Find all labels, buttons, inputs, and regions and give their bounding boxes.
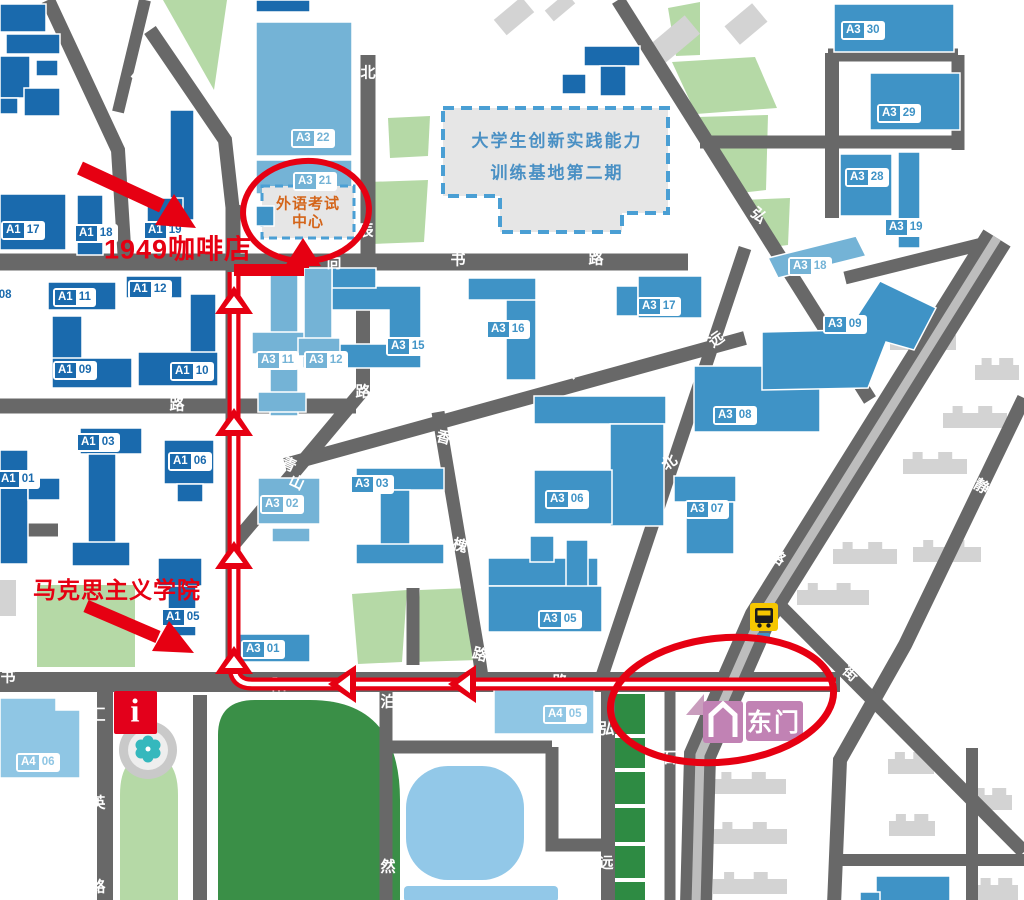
campus-map: 大学生创新实践能力 训练基地第二期 外语考试 中心 东门 i A117A118A… bbox=[0, 0, 1024, 900]
annotation-arrows bbox=[80, 168, 196, 653]
route-overlay bbox=[0, 0, 1024, 900]
east-gate-circle bbox=[604, 627, 840, 774]
route-line bbox=[234, 272, 836, 684]
